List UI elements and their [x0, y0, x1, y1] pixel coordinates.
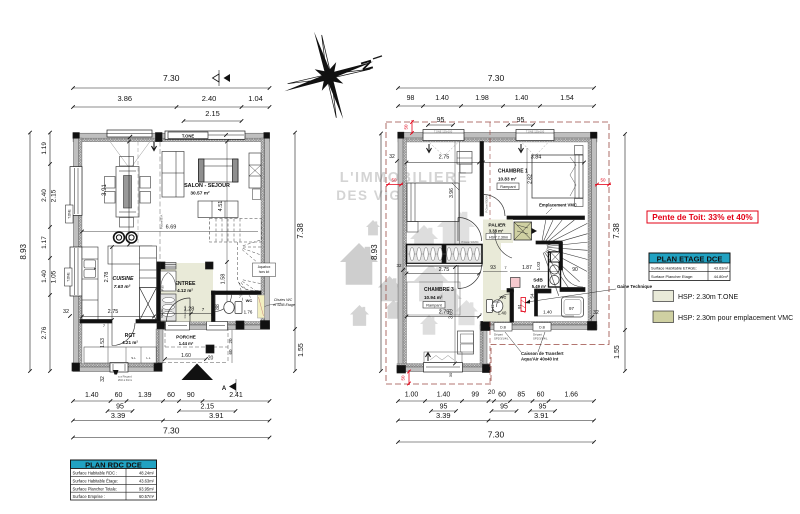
- svg-text:95: 95: [517, 117, 525, 124]
- svg-text:HSP: 2.30m T.ONE: HSP: 2.30m T.ONE: [678, 294, 739, 301]
- svg-text:4.21 m²: 4.21 m²: [122, 340, 138, 345]
- svg-text:Aquabox: Aquabox: [258, 265, 271, 269]
- svg-text:1.40: 1.40: [543, 310, 552, 315]
- svg-text:93: 93: [490, 265, 496, 271]
- svg-text:30.57 m²: 30.57 m²: [190, 191, 210, 197]
- svg-text:60: 60: [537, 392, 545, 399]
- svg-text:32: 32: [593, 310, 599, 316]
- svg-text:Meuble: Meuble: [160, 308, 164, 318]
- svg-text:WC: WC: [246, 298, 253, 303]
- svg-text:1.44 m²: 1.44 m²: [179, 341, 194, 346]
- svg-text:48.24m²: 48.24m²: [139, 471, 155, 476]
- svg-text:WC: WC: [500, 295, 507, 300]
- svg-text:1.53: 1.53: [100, 338, 106, 348]
- svg-text:SALON - SEJOUR: SALON - SEJOUR: [184, 183, 230, 189]
- svg-text:4.51: 4.51: [218, 201, 224, 212]
- svg-text:1.58: 1.58: [221, 274, 227, 285]
- svg-text:3.86: 3.86: [117, 94, 132, 103]
- svg-text:44.80m²: 44.80m²: [714, 274, 729, 279]
- svg-text:10.94 m²: 10.94 m²: [424, 295, 443, 300]
- svg-text:Surface Plancher Etage:: Surface Plancher Etage:: [651, 274, 693, 279]
- svg-text:60.57m²: 60.57m²: [139, 494, 155, 499]
- svg-text:D.B: D.B: [539, 325, 545, 329]
- svg-text:PLAN ETAGE DCE: PLAN ETAGE DCE: [657, 255, 723, 264]
- svg-text:5.49 m²: 5.49 m²: [532, 284, 547, 289]
- svg-text:1.39: 1.39: [138, 392, 152, 399]
- svg-text:T.ONE 125x100: T.ONE 125x100: [434, 130, 453, 134]
- svg-text:1.87: 1.87: [522, 265, 532, 271]
- svg-text:91: 91: [517, 304, 522, 310]
- svg-text:7.38: 7.38: [296, 223, 305, 239]
- svg-text:7.38: 7.38: [612, 223, 621, 239]
- svg-text:T.ONE: T.ONE: [68, 209, 72, 218]
- svg-text:98: 98: [407, 95, 415, 102]
- svg-text:2.75: 2.75: [108, 309, 119, 315]
- svg-text:HSP 2.30m: HSP 2.30m: [489, 235, 508, 239]
- svg-text:1.55: 1.55: [614, 345, 621, 359]
- svg-text:3.39: 3.39: [111, 411, 126, 420]
- svg-text:1.40: 1.40: [435, 95, 449, 102]
- svg-text:3.96: 3.96: [449, 188, 455, 198]
- svg-text:30: 30: [448, 372, 453, 377]
- svg-text:3.91: 3.91: [209, 411, 224, 420]
- svg-text:85: 85: [517, 392, 525, 399]
- svg-text:32: 32: [63, 309, 69, 315]
- svg-text:99: 99: [471, 392, 479, 399]
- svg-text:1.05: 1.05: [51, 270, 58, 283]
- svg-text:T.ONE: T.ONE: [67, 272, 71, 281]
- svg-text:1.60: 1.60: [181, 353, 191, 359]
- svg-text:Pente de Toit: 33% et 40%: Pente de Toit: 33% et 40%: [652, 213, 753, 222]
- svg-text:7: 7: [239, 295, 241, 299]
- svg-text:1.55: 1.55: [298, 343, 305, 357]
- svg-text:90: 90: [572, 267, 578, 273]
- svg-text:32: 32: [389, 154, 395, 160]
- svg-text:1.66: 1.66: [564, 392, 578, 399]
- svg-text:D.B: D.B: [500, 325, 506, 329]
- svg-text:97: 97: [569, 306, 575, 311]
- svg-text:1.40: 1.40: [498, 311, 507, 316]
- svg-text:2.40: 2.40: [202, 94, 217, 103]
- svg-text:93.95m²: 93.95m²: [139, 486, 155, 491]
- svg-text:95: 95: [437, 117, 445, 124]
- svg-text:1.12: 1.12: [491, 305, 495, 312]
- svg-text:1.40: 1.40: [437, 392, 451, 399]
- svg-text:L.L: L.L: [146, 356, 151, 360]
- svg-text:Chutes WC: Chutes WC: [274, 298, 293, 302]
- svg-text:T.ONE: T.ONE: [182, 133, 195, 138]
- svg-text:2.76: 2.76: [41, 326, 48, 339]
- svg-text:2.15: 2.15: [200, 404, 214, 411]
- svg-text:Gaine Technique: Gaine Technique: [617, 284, 653, 289]
- svg-text:Surface Habitable RDC :: Surface Habitable RDC :: [73, 471, 118, 476]
- svg-text:8.93: 8.93: [19, 243, 28, 259]
- svg-text:1.40: 1.40: [85, 392, 99, 399]
- svg-text:1.03: 1.03: [536, 261, 541, 270]
- svg-text:43.63m²: 43.63m²: [714, 265, 729, 270]
- svg-text:60: 60: [228, 349, 233, 355]
- svg-text:P.95: P.95: [161, 285, 165, 291]
- svg-text:1.00: 1.00: [405, 392, 419, 399]
- svg-text:hors lot: hors lot: [259, 270, 270, 274]
- svg-text:3.39: 3.39: [436, 411, 451, 420]
- svg-text:1.17: 1.17: [41, 236, 48, 249]
- svg-text:Caisson de Transfert: Caisson de Transfert: [521, 351, 564, 356]
- svg-text:Surface Emprise :: Surface Emprise :: [73, 494, 106, 499]
- svg-text:P.Gson 93/204: P.Gson 93/204: [485, 195, 489, 213]
- svg-text:Emplacement VMC: Emplacement VMC: [539, 203, 577, 208]
- svg-text:1.76: 1.76: [244, 310, 253, 315]
- svg-text:95: 95: [116, 404, 124, 411]
- svg-text:6.69: 6.69: [166, 225, 177, 231]
- svg-text:2.75: 2.75: [439, 267, 450, 273]
- svg-text:Rampant: Rampant: [500, 185, 516, 189]
- svg-text:1.40: 1.40: [515, 95, 529, 102]
- svg-text:90: 90: [187, 392, 195, 399]
- svg-text:Surface Habitable ETAGE:: Surface Habitable ETAGE:: [651, 265, 697, 270]
- svg-text:3.84: 3.84: [531, 155, 542, 161]
- svg-text:CUISINE: CUISINE: [112, 276, 134, 282]
- svg-text:2.15: 2.15: [205, 109, 220, 118]
- svg-text:60: 60: [167, 392, 175, 399]
- svg-text:Surface Plancher Totale:: Surface Plancher Totale:: [73, 486, 118, 491]
- svg-text:2.75: 2.75: [439, 155, 450, 161]
- svg-text:2.40: 2.40: [41, 189, 48, 202]
- svg-text:32: 32: [100, 376, 106, 382]
- svg-text:S.L: S.L: [131, 356, 136, 360]
- svg-text:SP2/3/1/4/L: SP2/3/1/4/L: [533, 337, 548, 341]
- svg-text:50: 50: [391, 178, 397, 183]
- svg-text:60: 60: [115, 392, 123, 399]
- svg-text:3.38 m²: 3.38 m²: [489, 229, 504, 234]
- svg-text:T.ONE 125x100: T.ONE 125x100: [526, 130, 545, 134]
- svg-text:Aqua'Air 40x40 Int: Aqua'Air 40x40 Int: [521, 357, 559, 362]
- svg-text:3.91: 3.91: [534, 411, 549, 420]
- svg-text:50: 50: [600, 178, 606, 183]
- svg-text:Surface Habitable Étage:: Surface Habitable Étage:: [73, 478, 119, 483]
- svg-text:2.15: 2.15: [51, 189, 58, 202]
- svg-text:43.63m²: 43.63m²: [139, 478, 155, 483]
- svg-text:PLAN RDC DCE: PLAN RDC DCE: [85, 460, 142, 469]
- svg-text:32: 32: [396, 263, 402, 268]
- svg-text:Rampant: Rampant: [426, 304, 442, 308]
- svg-text:50: 50: [401, 375, 406, 381]
- svg-text:20: 20: [488, 389, 496, 396]
- svg-text:2.78: 2.78: [104, 272, 110, 283]
- svg-text:HSP: 2.30m pour emplacement VM: HSP: 2.30m pour emplacement VMC: [678, 315, 793, 322]
- svg-text:1.28: 1.28: [184, 307, 195, 313]
- svg-text:1.54: 1.54: [560, 95, 574, 102]
- svg-text:7.30: 7.30: [488, 73, 505, 83]
- svg-text:7.30: 7.30: [488, 430, 505, 440]
- svg-text:20: 20: [228, 338, 233, 344]
- svg-text:7.30: 7.30: [163, 426, 180, 436]
- svg-text:95: 95: [539, 404, 547, 411]
- svg-text:PORCHE: PORCHE: [176, 335, 196, 340]
- svg-text:7.63 m²: 7.63 m²: [114, 284, 131, 290]
- svg-text:2.82: 2.82: [528, 174, 534, 184]
- svg-text:A: A: [222, 386, 227, 392]
- svg-text:1.19: 1.19: [41, 142, 48, 155]
- svg-text:Ø40 à 60cm: Ø40 à 60cm: [118, 378, 132, 382]
- svg-text:88: 88: [215, 304, 221, 310]
- svg-text:SP2/3/1/4/L: SP2/3/1/4/L: [494, 337, 509, 341]
- svg-text:CHAMBRE 3: CHAMBRE 3: [424, 287, 454, 293]
- svg-text:2.41: 2.41: [229, 392, 243, 399]
- svg-text:20: 20: [208, 356, 214, 362]
- svg-text:RGT: RGT: [125, 333, 136, 339]
- svg-text:3.69: 3.69: [449, 309, 455, 319]
- svg-text:95: 95: [500, 404, 508, 411]
- svg-text:95: 95: [440, 404, 448, 411]
- svg-text:50: 50: [404, 124, 409, 130]
- svg-text:CHAMBRE 1: CHAMBRE 1: [498, 169, 528, 175]
- svg-text:7.30: 7.30: [163, 73, 180, 83]
- svg-text:1.98: 1.98: [475, 95, 489, 102]
- svg-text:1.40: 1.40: [41, 270, 48, 283]
- svg-text:P.Gson 93/204: P.Gson 93/204: [462, 240, 480, 244]
- svg-text:1.04: 1.04: [248, 94, 263, 103]
- svg-text:SdB: SdB: [533, 278, 543, 284]
- svg-text:54: 54: [530, 293, 535, 299]
- svg-text:8.93: 8.93: [370, 244, 379, 260]
- svg-text:3.91: 3.91: [102, 184, 108, 196]
- svg-text:ENTREE: ENTREE: [174, 281, 196, 287]
- svg-text:10.83 m²: 10.83 m²: [498, 177, 517, 182]
- svg-text:Poutre B.A: Poutre B.A: [160, 215, 164, 230]
- svg-text:60: 60: [498, 392, 506, 399]
- svg-text:4.12 m²: 4.12 m²: [177, 288, 193, 293]
